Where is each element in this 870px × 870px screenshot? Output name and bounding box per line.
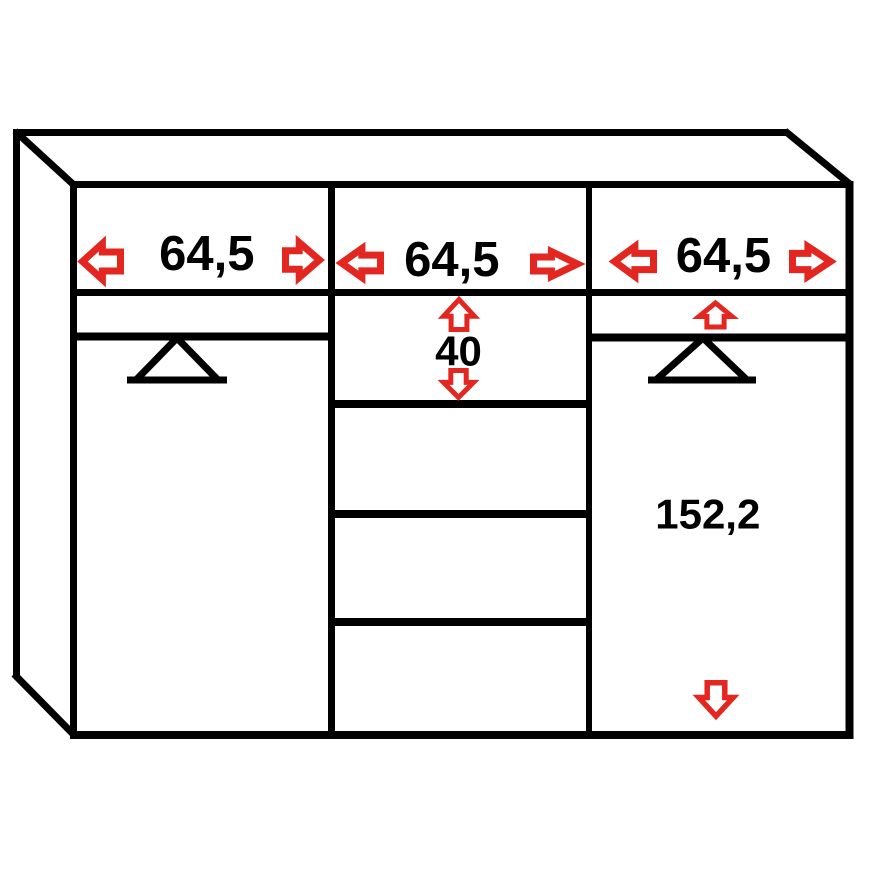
svg-text:40: 40: [435, 328, 482, 375]
svg-text:64,5: 64,5: [404, 233, 499, 287]
svg-text:64,5: 64,5: [676, 229, 771, 283]
svg-text:64,5: 64,5: [159, 227, 254, 281]
svg-text:152,2: 152,2: [655, 491, 760, 538]
